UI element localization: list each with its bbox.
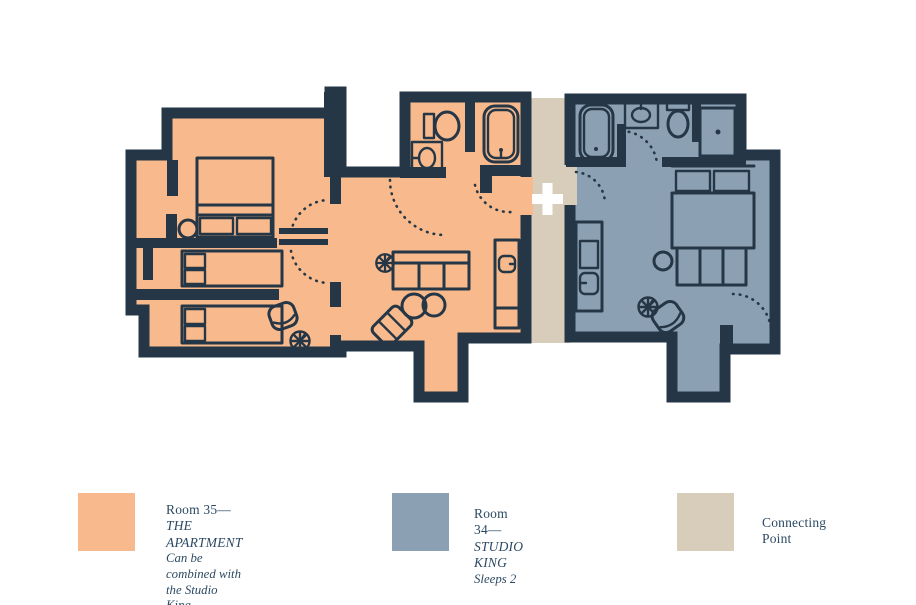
- room-34-title: Room 34— STUDIO KING: [474, 506, 523, 572]
- wall-fin: [324, 92, 345, 177]
- connecting-point-strip: [526, 98, 570, 343]
- plant-icon: [639, 298, 658, 317]
- connecting-point-title: Connecting Point: [762, 515, 826, 548]
- room-34-connecting-door-opening: [563, 165, 577, 205]
- room-35-title: Room 35— THE APARTMENT: [166, 502, 243, 551]
- connecting-point-swatch: [677, 493, 734, 551]
- room-35-note: Can be combined with the Studio King: [166, 551, 243, 605]
- room-34-swatch: [392, 493, 449, 551]
- room-34-sleeps: Sleeps 2: [474, 572, 523, 588]
- plant-icon: [291, 332, 310, 351]
- plant-icon: [376, 254, 393, 271]
- room-35-apartment: [131, 92, 533, 397]
- floor-plan-page: Room 35— THE APARTMENT Can be combined w…: [0, 0, 916, 605]
- room-35-swatch: [78, 493, 135, 551]
- room-34-studio-king: [563, 99, 775, 397]
- room-35-connecting-door-opening: [519, 177, 533, 215]
